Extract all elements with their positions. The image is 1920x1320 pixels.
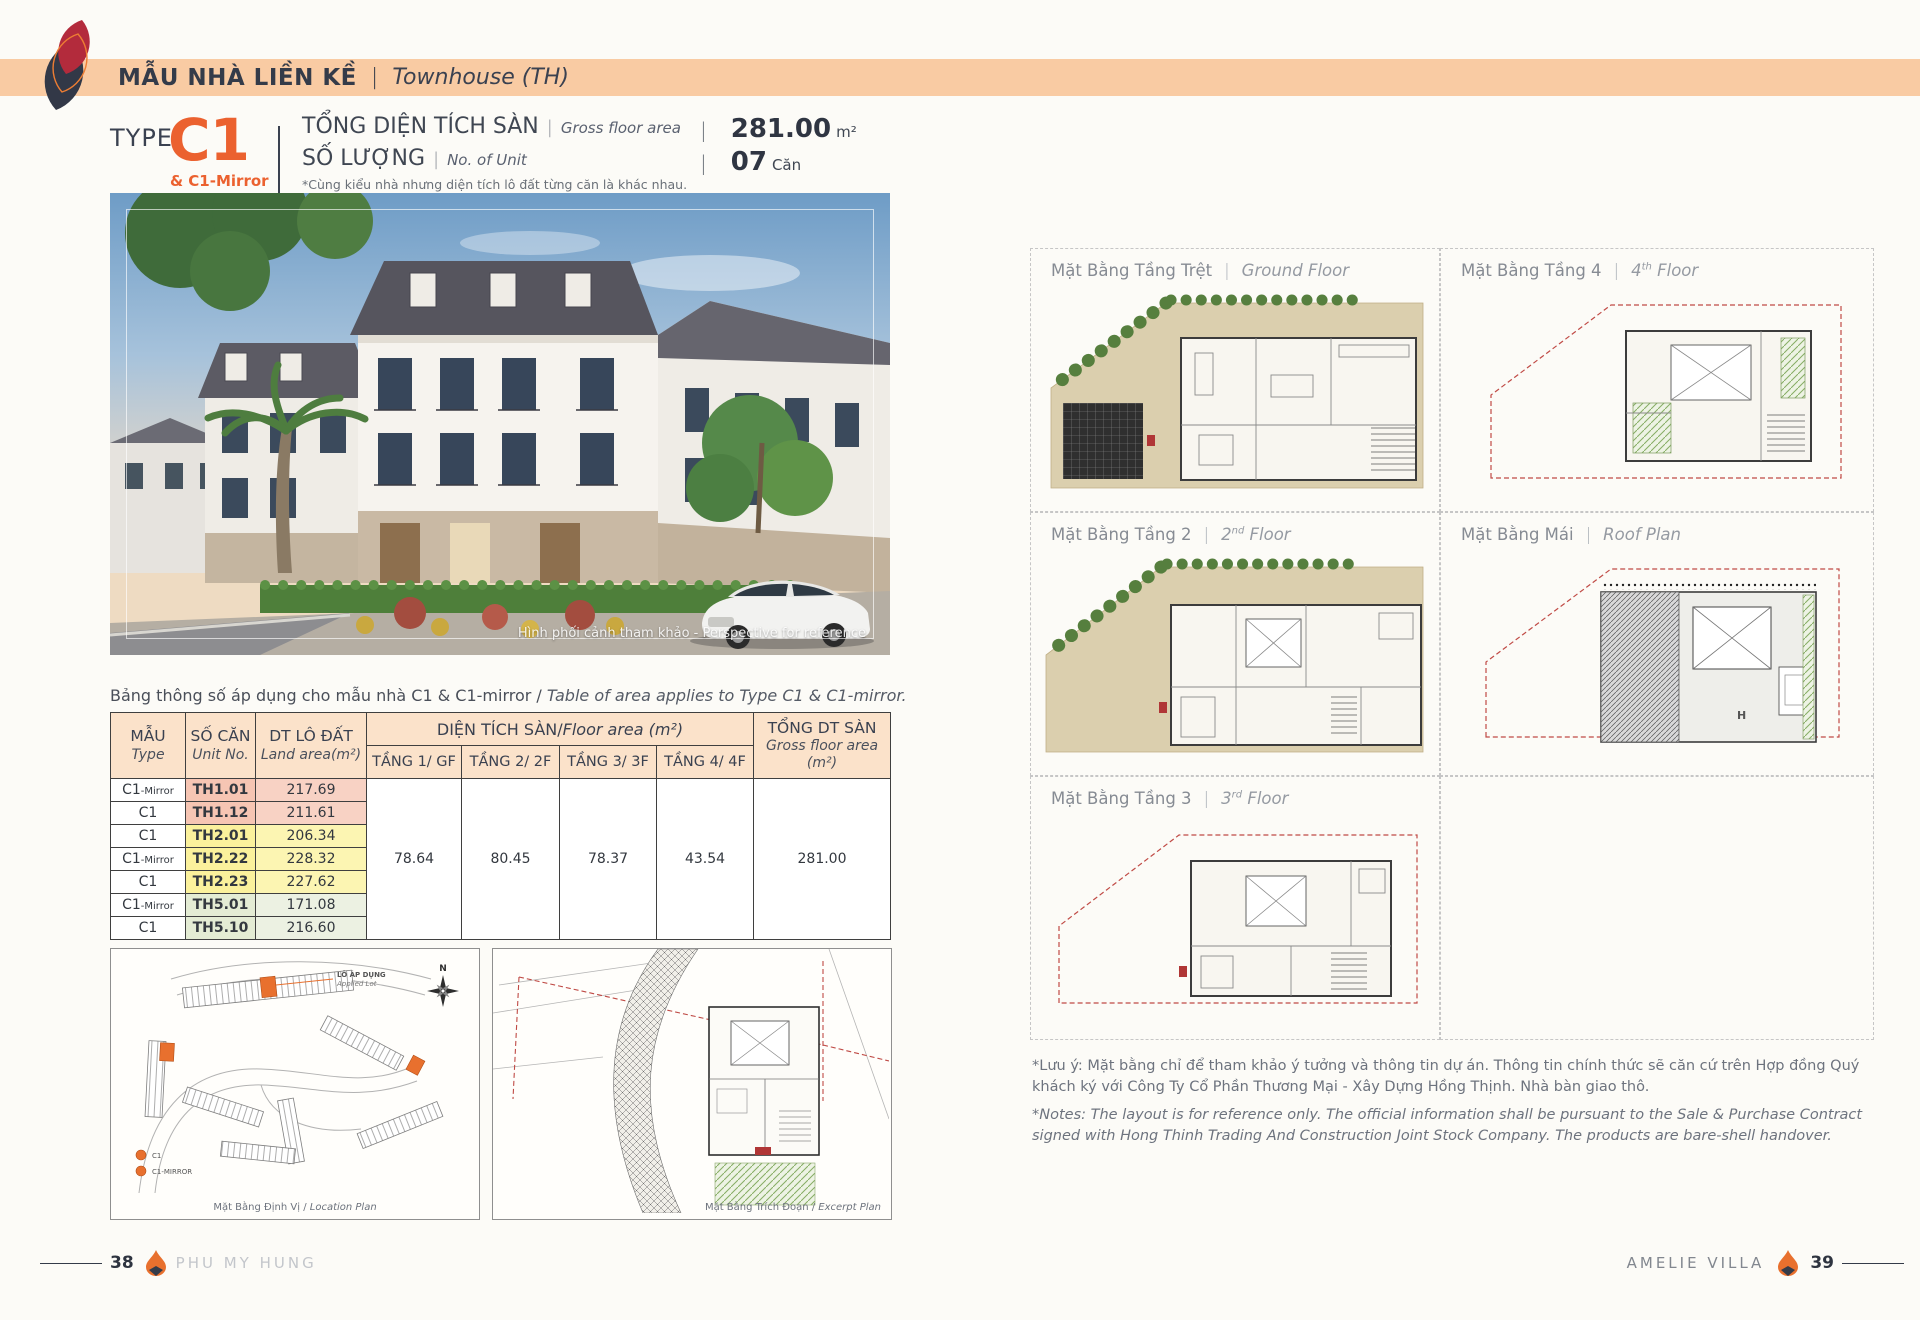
table-caption: Bảng thông số áp dụng cho mẫu nhà C1 & C… — [110, 686, 907, 705]
cell-land: 217.69 — [256, 779, 367, 802]
footer-rule — [40, 1263, 102, 1264]
col-header-unit: SỐ CĂN Unit No. — [186, 713, 256, 779]
gfa-unit: m² — [836, 123, 857, 141]
ground-floor-plan-drawing — [1031, 283, 1441, 503]
panel-ground-floor: Mặt Bằng Tầng Trệt|Ground Floor — [1030, 248, 1440, 512]
page-number-left: 38 — [110, 1253, 134, 1273]
cell-floor3-merged: 78.37 — [560, 779, 657, 940]
cell-land: 211.61 — [256, 802, 367, 825]
pipe: | — [547, 117, 553, 138]
pipe: | — [1586, 525, 1592, 544]
gfa-value: 281.00 — [731, 114, 831, 144]
roof-plan-drawing: H — [1441, 547, 1875, 767]
cell-type: C1-Mirror — [111, 779, 186, 802]
cell-unit: TH2.01 — [186, 825, 256, 848]
col-type-vi: MẪU — [115, 727, 181, 746]
area-table: MẪU Type SỐ CĂN Unit No. DT LÔ ĐẤT Land … — [110, 712, 891, 940]
panel-title-vi: Mặt Bằng Tầng 2 — [1051, 525, 1192, 544]
col-land-vi: DT LÔ ĐẤT — [260, 727, 362, 746]
col-header-floor-group: DIỆN TÍCH SÀN/Floor area (m²) — [367, 713, 754, 746]
title-separator: | — [371, 65, 378, 90]
type-code: C1 — [168, 106, 249, 174]
cell-type: C1 — [111, 802, 186, 825]
table-caption-en: Table of area applies to Type C1 & C1-mi… — [542, 686, 907, 705]
pipe: | — [1204, 525, 1210, 544]
cell-type: C1 — [111, 917, 186, 940]
gfa-label-vi: TỔNG DIỆN TÍCH SÀN — [302, 114, 539, 139]
pipe: | — [700, 151, 707, 175]
excerpt-plan-drawing — [493, 949, 889, 1213]
col-header-floor3: TẦNG 3/ 3F — [560, 746, 657, 779]
col-header-floor1: TẦNG 1/ GF — [367, 746, 462, 779]
qty-label-row: SỐ LƯỢNG|No. of Unit — [302, 146, 527, 171]
col-header-floor2: TẦNG 2/ 2F — [462, 746, 560, 779]
cell-floor1-merged: 78.64 — [367, 779, 462, 940]
cell-land: 206.34 — [256, 825, 367, 848]
pipe: | — [433, 149, 439, 170]
col-total-unit: (m²) — [758, 755, 886, 772]
cell-land: 171.08 — [256, 894, 367, 917]
col-unit-vi: SỐ CĂN — [190, 727, 251, 746]
col-total-en: Gross floor area — [758, 738, 886, 755]
perspective-rendering: Hình phối cảnh tham khảo - Perspective f… — [110, 193, 890, 655]
footer-right: AMELIE VILLA 39 — [1627, 1248, 1904, 1278]
panel-4th-floor: Mặt Bằng Tầng 4|4th Floor — [1440, 248, 1874, 512]
panel-3rd-floor: Mặt Bằng Tầng 3|3rd Floor — [1030, 776, 1440, 1040]
panel-roof-plan: Mặt Bằng Mái|Roof Plan H — [1440, 512, 1874, 776]
2nd-floor-plan-drawing — [1031, 547, 1441, 767]
page-number-right: 39 — [1810, 1253, 1834, 1273]
excerpt-plan-box: Mặt Bằng Trích Đoạn / Excerpt Plan — [492, 948, 892, 1220]
col-header-total: TỔNG DT SÀN Gross floor area (m²) — [754, 713, 891, 779]
panel-2nd-floor: Mặt Bằng Tầng 2|2nd Floor — [1030, 512, 1440, 776]
cell-type: C1-Mirror — [111, 894, 186, 917]
panel-title-vi: Mặt Bằng Tầng Trệt — [1051, 261, 1212, 280]
panel-title-vi: Mặt Bằng Mái — [1461, 525, 1574, 544]
cell-total-merged: 281.00 — [754, 779, 891, 940]
col-header-type: MẪU Type — [111, 713, 186, 779]
drop-icon — [1778, 1250, 1798, 1276]
page-title-en: Townhouse (TH) — [392, 65, 569, 90]
cell-unit: TH2.22 — [186, 848, 256, 871]
cell-type: C1 — [111, 825, 186, 848]
pipe: | — [1204, 789, 1210, 808]
type-label: TYPE — [110, 124, 173, 152]
legend-c1-mirror: C1-MIRROR — [152, 1168, 192, 1176]
phu-my-hung-logo-icon — [38, 12, 116, 122]
legend-c1: C1 — [152, 1152, 161, 1160]
footer-rule — [1842, 1263, 1904, 1264]
applied-lot-label-en: Applied Lot — [336, 980, 377, 988]
gfa-value-row: |281.00m² — [700, 114, 857, 144]
floor-plan-grid: Mặt Bằng Tầng Trệt|Ground Floor — [1030, 248, 1874, 1040]
qty-label-en: No. of Unit — [447, 151, 527, 169]
cell-type: C1 — [111, 871, 186, 894]
pipe: | — [1224, 261, 1230, 280]
table-caption-vi: Bảng thông số áp dụng cho mẫu nhà C1 & C… — [110, 686, 542, 705]
gfa-label-en: Gross floor area — [561, 119, 681, 137]
cell-type: C1-Mirror — [111, 848, 186, 871]
brand-left: PHU MY HUNG — [176, 1254, 317, 1272]
spec-note-vi: *Cùng kiểu nhà nhưng diện tích lô đất từ… — [302, 177, 687, 192]
cell-unit: TH1.12 — [186, 802, 256, 825]
panel-title-vi: Mặt Bằng Tầng 3 — [1051, 789, 1192, 808]
col-unit-en: Unit No. — [190, 747, 251, 764]
cell-unit: TH5.01 — [186, 894, 256, 917]
panel-title-vi: Mặt Bằng Tầng 4 — [1461, 261, 1602, 280]
floor-group-vi: DIỆN TÍCH SÀN/ — [437, 720, 563, 739]
page-title-vi: MẪU NHÀ LIỀN KỀ — [118, 65, 357, 91]
floor-group-en: Floor area (m²) — [563, 720, 684, 739]
excerpt-plan-caption: Mặt Bằng Trích Đoạn / Excerpt Plan — [705, 1202, 881, 1213]
pipe: | — [700, 118, 707, 142]
brochure-page: MẪU NHÀ LIỀN KỀ | Townhouse (TH) TYPE C1… — [0, 0, 1920, 1320]
location-plan-caption: Mặt Bằng Định Vị / Location Plan — [213, 1202, 376, 1213]
qty-label-vi: SỐ LƯỢNG — [302, 146, 425, 171]
note-en: *Notes: The layout is for reference only… — [1032, 1105, 1878, 1146]
table-row: C1-Mirror TH1.01 217.69 78.64 80.45 78.3… — [111, 779, 891, 802]
cell-unit: TH1.01 — [186, 779, 256, 802]
cell-floor4-merged: 43.54 — [657, 779, 754, 940]
brand-right: AMELIE VILLA — [1627, 1254, 1765, 1272]
col-type-en: Type — [115, 747, 181, 764]
drop-icon — [146, 1250, 166, 1276]
cell-unit: TH2.23 — [186, 871, 256, 894]
3rd-floor-plan-drawing — [1031, 811, 1441, 1031]
col-header-floor4: TẦNG 4/ 4F — [657, 746, 754, 779]
cell-floor2-merged: 80.45 — [462, 779, 560, 940]
location-plan-drawing: LÔ ÁP DỤNG Applied Lot N C1 C1-MIRROR — [111, 949, 477, 1213]
cell-land: 227.62 — [256, 871, 367, 894]
qty-value-row: |07Căn — [700, 147, 801, 177]
photo-caption: Hình phối cảnh tham khảo - Perspective f… — [518, 626, 866, 641]
col-header-land: DT LÔ ĐẤT Land area(m²) — [256, 713, 367, 779]
townhouse-render-illustration — [110, 193, 890, 655]
qty-unit: Căn — [772, 156, 801, 174]
compass-n-label: N — [439, 964, 447, 974]
cell-unit: TH5.10 — [186, 917, 256, 940]
spec-divider — [278, 126, 280, 202]
footer-left: 38 PHU MY HUNG — [40, 1248, 317, 1278]
type-sub: & C1-Mirror — [170, 172, 269, 190]
location-plan-box: LÔ ÁP DỤNG Applied Lot N C1 C1-MIRROR Mặ… — [110, 948, 480, 1220]
gfa-label-row: TỔNG DIỆN TÍCH SÀN|Gross floor area — [302, 114, 681, 139]
panel-empty — [1440, 776, 1874, 1040]
cell-land: 216.60 — [256, 917, 367, 940]
applied-lot-label-vi: LÔ ÁP DỤNG — [337, 970, 386, 979]
qty-value: 07 — [731, 147, 767, 177]
svg-text:H: H — [1737, 709, 1746, 722]
col-land-en: Land area(m²) — [260, 747, 362, 764]
col-total-vi: TỔNG DT SÀN — [758, 719, 886, 738]
note-vi: *Lưu ý: Mặt bằng chỉ để tham khảo ý tưởn… — [1032, 1056, 1878, 1097]
4th-floor-plan-drawing — [1441, 283, 1875, 503]
pipe: | — [1614, 261, 1620, 280]
cell-land: 228.32 — [256, 848, 367, 871]
header-band: MẪU NHÀ LIỀN KỀ | Townhouse (TH) — [0, 59, 1920, 96]
compass-icon: N — [427, 964, 459, 1007]
disclaimer-notes: *Lưu ý: Mặt bằng chỉ để tham khảo ý tưởn… — [1032, 1056, 1878, 1154]
